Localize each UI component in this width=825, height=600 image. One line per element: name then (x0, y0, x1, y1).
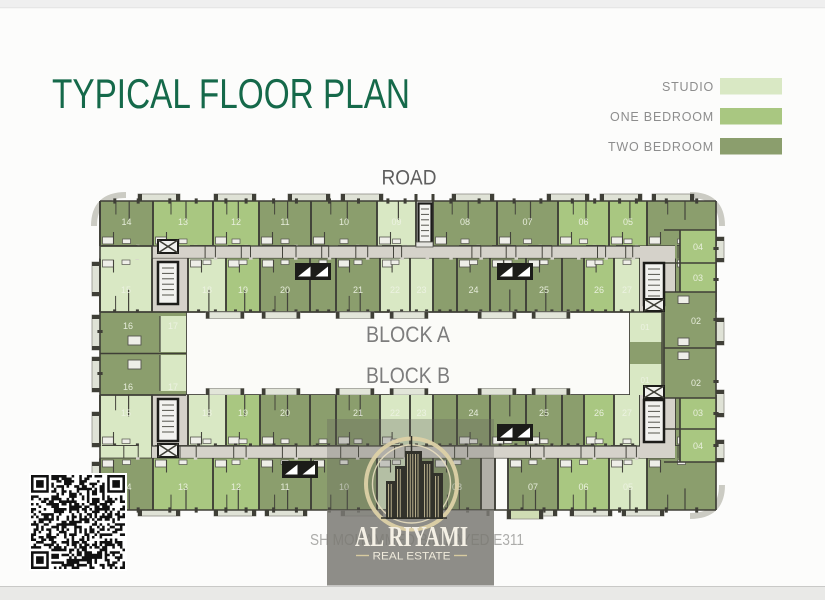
svg-text:23: 23 (416, 285, 426, 295)
svg-text:22: 22 (390, 408, 400, 418)
svg-text:09: 09 (391, 217, 401, 227)
svg-text:14: 14 (121, 217, 131, 227)
svg-text:06: 06 (578, 217, 588, 227)
svg-text:20: 20 (280, 285, 290, 295)
svg-text:04: 04 (693, 441, 703, 451)
svg-text:12: 12 (231, 217, 241, 227)
svg-text:STUDIO: STUDIO (662, 80, 714, 94)
svg-text:11: 11 (280, 482, 289, 492)
svg-text:01: 01 (641, 323, 650, 332)
svg-text:03: 03 (693, 408, 703, 418)
svg-text:11: 11 (280, 217, 289, 227)
svg-text:24: 24 (468, 408, 478, 418)
svg-text:17: 17 (168, 321, 178, 331)
svg-text:12: 12 (231, 482, 241, 492)
svg-text:02: 02 (691, 378, 701, 388)
svg-text:25: 25 (539, 285, 549, 295)
svg-text:18: 18 (202, 285, 212, 295)
svg-text:AL RIYAMI: AL RIYAMI (355, 522, 468, 553)
svg-text:ONE BEDROOM: ONE BEDROOM (610, 110, 714, 124)
svg-text:05: 05 (623, 482, 633, 492)
svg-text:13: 13 (178, 482, 188, 492)
svg-text:ROAD: ROAD (382, 167, 437, 190)
svg-text:23: 23 (416, 408, 426, 418)
svg-text:BLOCK B: BLOCK B (366, 363, 450, 388)
svg-text:21: 21 (353, 285, 363, 295)
svg-text:05: 05 (623, 217, 633, 227)
svg-text:TWO BEDROOM: TWO BEDROOM (608, 140, 714, 154)
svg-text:17: 17 (168, 382, 178, 392)
svg-text:22: 22 (390, 285, 400, 295)
svg-text:BLOCK A: BLOCK A (366, 322, 450, 347)
svg-text:06: 06 (578, 482, 588, 492)
svg-text:01: 01 (641, 376, 650, 385)
svg-text:25: 25 (539, 408, 549, 418)
svg-text:08: 08 (460, 217, 470, 227)
svg-text:16: 16 (123, 382, 133, 392)
svg-text:02: 02 (691, 316, 701, 326)
svg-text:TYPICAL FLOOR PLAN: TYPICAL FLOOR PLAN (52, 70, 410, 117)
svg-text:15: 15 (121, 285, 131, 295)
svg-text:26: 26 (594, 408, 604, 418)
svg-text:15: 15 (121, 408, 131, 418)
svg-text:21: 21 (353, 408, 363, 418)
svg-text:18: 18 (202, 408, 212, 418)
svg-text:24: 24 (468, 285, 478, 295)
svg-text:04: 04 (693, 242, 703, 252)
svg-text:27: 27 (622, 285, 632, 295)
svg-text:07: 07 (528, 482, 538, 492)
svg-text:13: 13 (178, 217, 188, 227)
svg-text:07: 07 (522, 217, 532, 227)
svg-text:26: 26 (594, 285, 604, 295)
svg-text:REAL ESTATE: REAL ESTATE (373, 551, 451, 563)
svg-text:19: 19 (238, 408, 248, 418)
svg-text:20: 20 (280, 408, 290, 418)
svg-text:27: 27 (622, 408, 632, 418)
svg-text:19: 19 (238, 285, 248, 295)
svg-text:16: 16 (123, 321, 133, 331)
svg-text:03: 03 (693, 273, 703, 283)
svg-text:10: 10 (339, 217, 349, 227)
